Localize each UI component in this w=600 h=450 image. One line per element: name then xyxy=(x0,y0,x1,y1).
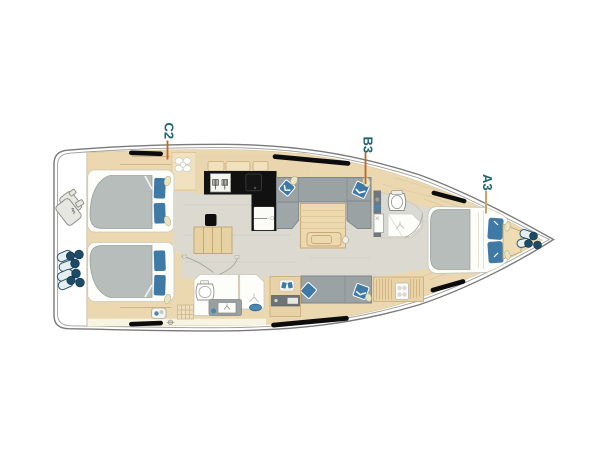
svg-text:C2: C2 xyxy=(162,123,177,140)
svg-text:A3: A3 xyxy=(480,174,495,191)
svg-text:B3: B3 xyxy=(361,137,376,154)
